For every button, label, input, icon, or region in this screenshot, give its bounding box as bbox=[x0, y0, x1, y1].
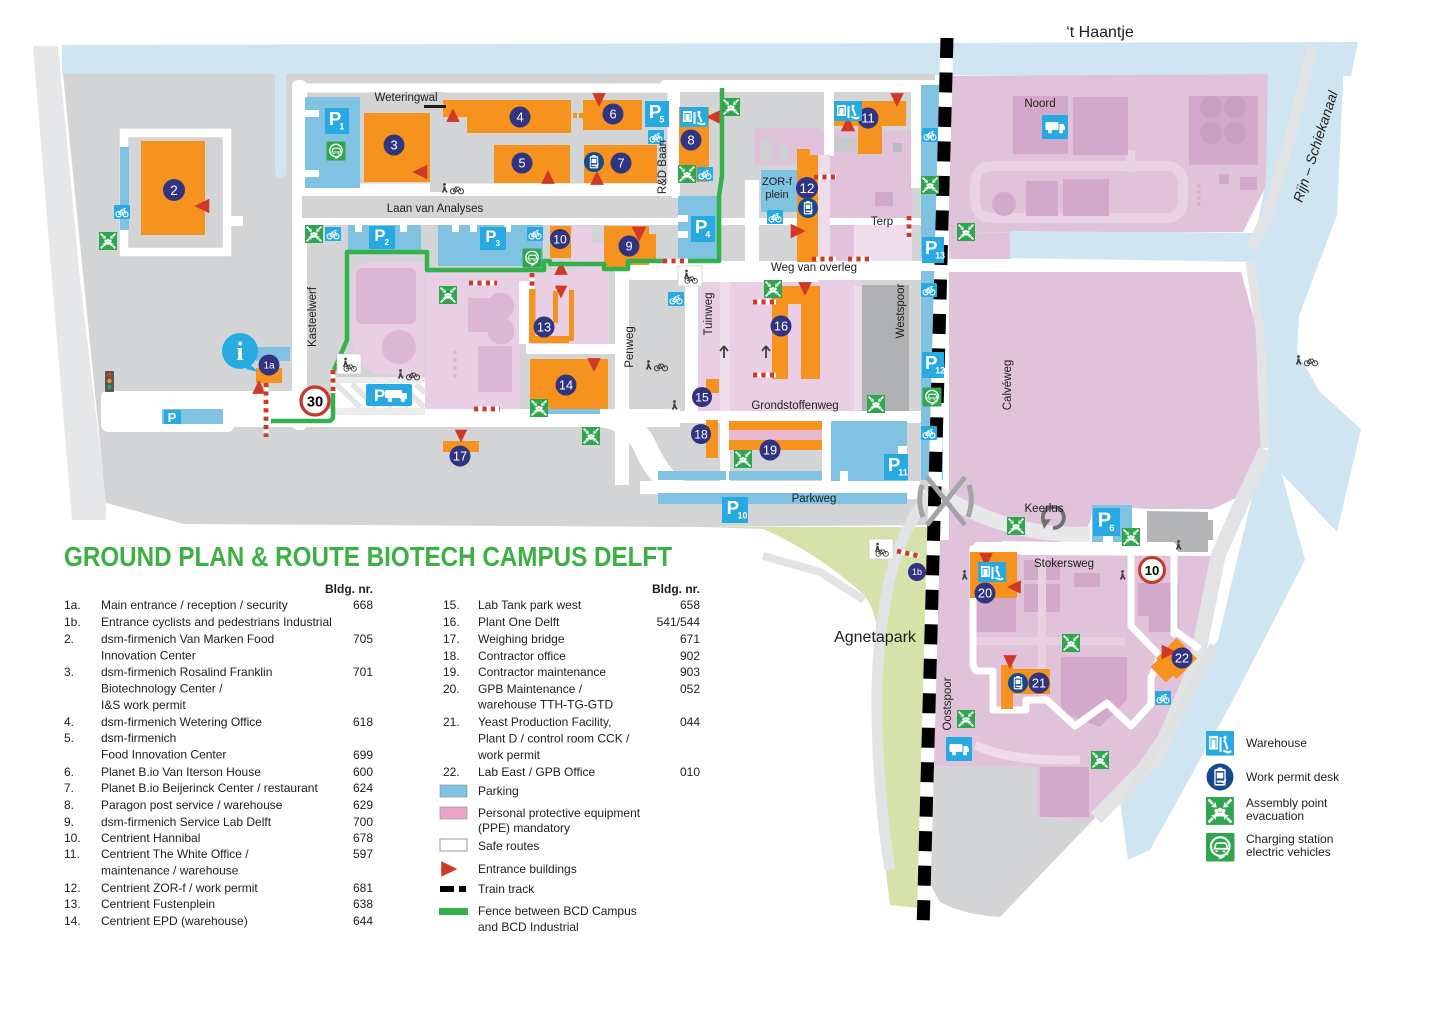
svg-text:‘t Haantje: ‘t Haantje bbox=[1066, 24, 1134, 41]
svg-text:7: 7 bbox=[617, 156, 624, 171]
svg-text:dsm-firmenich Van Marken Food: dsm-firmenich Van Marken Food bbox=[101, 632, 274, 646]
svg-text:8.: 8. bbox=[64, 798, 74, 812]
svg-text:Weighing bridge: Weighing bridge bbox=[478, 632, 565, 646]
svg-text:Centrient The White Office /: Centrient The White Office / bbox=[101, 847, 249, 861]
svg-text:GROUND PLAN & ROUTE BIOTECH CA: GROUND PLAN & ROUTE BIOTECH CAMPUS DELFT bbox=[64, 541, 672, 572]
svg-text:1b.: 1b. bbox=[64, 615, 81, 629]
svg-text:671: 671 bbox=[680, 632, 700, 646]
svg-text:Plant D / control room CCK /: Plant D / control room CCK / bbox=[478, 732, 630, 746]
svg-text:15.: 15. bbox=[443, 598, 460, 612]
svg-text:681: 681 bbox=[353, 881, 373, 895]
svg-text:Centrient EPD (warehouse): Centrient EPD (warehouse) bbox=[101, 914, 248, 928]
svg-text:1a: 1a bbox=[263, 361, 275, 372]
svg-text:600: 600 bbox=[353, 765, 373, 779]
svg-text:Planet B.io Beijerinck Center: Planet B.io Beijerinck Center / restaura… bbox=[101, 781, 318, 795]
svg-text:644: 644 bbox=[353, 914, 373, 928]
svg-text:4.: 4. bbox=[64, 715, 74, 729]
svg-text:5: 5 bbox=[659, 114, 664, 124]
svg-text:3.: 3. bbox=[64, 665, 74, 679]
svg-text:Centrient Hannibal: Centrient Hannibal bbox=[101, 831, 200, 845]
svg-text:4: 4 bbox=[705, 229, 710, 239]
svg-text:P: P bbox=[374, 386, 385, 405]
svg-text:Noord: Noord bbox=[1024, 98, 1055, 110]
svg-text:Personal protective equipment: Personal protective equipment bbox=[478, 806, 641, 820]
svg-text:Agnetapark: Agnetapark bbox=[834, 629, 917, 646]
svg-text:Entrance cyclists and pedestri: Entrance cyclists and pedestrians Indust… bbox=[101, 615, 332, 629]
svg-text:dsm-firmenich Wetering Office: dsm-firmenich Wetering Office bbox=[101, 715, 262, 729]
svg-text:Contractor office: Contractor office bbox=[478, 649, 566, 663]
svg-text:618: 618 bbox=[353, 715, 373, 729]
svg-text:13: 13 bbox=[537, 320, 551, 335]
svg-text:11: 11 bbox=[898, 467, 907, 477]
svg-text:19: 19 bbox=[763, 443, 777, 458]
svg-text:Kasteelwerf: Kasteelwerf bbox=[307, 286, 319, 347]
svg-text:2: 2 bbox=[170, 183, 177, 198]
svg-text:Biotechnology Center /: Biotechnology Center / bbox=[101, 682, 223, 696]
svg-text:3: 3 bbox=[496, 239, 501, 248]
svg-text:18.: 18. bbox=[443, 649, 460, 663]
svg-text:10.: 10. bbox=[64, 831, 81, 845]
svg-text:2: 2 bbox=[385, 238, 390, 247]
svg-text:and BCD Industrial: and BCD Industrial bbox=[478, 920, 579, 934]
svg-text:Warehouse: Warehouse bbox=[1246, 736, 1307, 750]
svg-text:668: 668 bbox=[353, 598, 373, 612]
svg-text:Plant One Delft: Plant One Delft bbox=[478, 615, 560, 629]
svg-text:11: 11 bbox=[861, 111, 874, 126]
svg-text:Westspoor: Westspoor bbox=[895, 283, 907, 338]
svg-text:Train track: Train track bbox=[478, 882, 535, 896]
svg-text:638: 638 bbox=[353, 897, 373, 911]
svg-text:Calvéweg: Calvéweg bbox=[1002, 360, 1014, 411]
svg-text:044: 044 bbox=[680, 715, 700, 729]
svg-text:6: 6 bbox=[609, 107, 616, 122]
svg-text:maintenance / warehouse: maintenance / warehouse bbox=[101, 864, 239, 878]
svg-text:15: 15 bbox=[695, 390, 709, 404]
svg-text:1a.: 1a. bbox=[64, 598, 81, 612]
svg-text:17: 17 bbox=[453, 449, 467, 464]
svg-text:R&D Baan: R&D Baan bbox=[657, 140, 669, 194]
svg-text:evacuation: evacuation bbox=[1246, 809, 1304, 823]
svg-text:Contractor maintenance: Contractor maintenance bbox=[478, 665, 606, 679]
svg-text:624: 624 bbox=[353, 781, 373, 795]
svg-text:12: 12 bbox=[800, 181, 815, 196]
svg-text:Yeast Production Facility,: Yeast Production Facility, bbox=[478, 715, 611, 729]
svg-text:P: P bbox=[168, 410, 177, 425]
svg-text:30: 30 bbox=[307, 394, 323, 410]
svg-text:work permit: work permit bbox=[477, 748, 541, 762]
svg-text:9.: 9. bbox=[64, 815, 74, 829]
svg-text:13: 13 bbox=[935, 250, 945, 260]
svg-text:629: 629 bbox=[353, 798, 373, 812]
svg-text:705: 705 bbox=[353, 632, 373, 646]
svg-text:Work permit desk: Work permit desk bbox=[1246, 770, 1340, 784]
svg-text:597: 597 bbox=[353, 847, 373, 861]
svg-text:20.: 20. bbox=[443, 682, 460, 696]
svg-text:Assembly point: Assembly point bbox=[1246, 796, 1328, 810]
svg-text:Stokersweg: Stokersweg bbox=[1034, 558, 1094, 570]
svg-text:700: 700 bbox=[353, 815, 373, 829]
svg-text:Entrance buildings: Entrance buildings bbox=[478, 862, 577, 876]
svg-text:2.: 2. bbox=[64, 632, 74, 646]
svg-text:electric vehicles: electric vehicles bbox=[1246, 845, 1331, 859]
svg-text:Lab East / GPB Office: Lab East / GPB Office bbox=[478, 765, 595, 779]
svg-text:Food Innovation Center: Food Innovation Center bbox=[101, 748, 226, 762]
svg-text:Oostspoor: Oostspoor bbox=[942, 677, 954, 730]
svg-text:10: 10 bbox=[1145, 563, 1160, 578]
svg-text:i: i bbox=[236, 337, 243, 366]
svg-text:7.: 7. bbox=[64, 781, 74, 795]
svg-text:Paragon post service / warehou: Paragon post service / warehouse bbox=[101, 798, 283, 812]
svg-text:1: 1 bbox=[339, 121, 344, 131]
svg-text:5.: 5. bbox=[64, 731, 74, 745]
svg-text:052: 052 bbox=[680, 682, 700, 696]
svg-text:Parkweg: Parkweg bbox=[792, 493, 837, 505]
svg-text:11.: 11. bbox=[64, 847, 80, 861]
svg-text:16: 16 bbox=[774, 319, 788, 334]
svg-text:13.: 13. bbox=[64, 897, 81, 911]
svg-text:21: 21 bbox=[1032, 676, 1046, 691]
svg-text:678: 678 bbox=[353, 831, 373, 845]
svg-text:Laan van Analyses: Laan van Analyses bbox=[387, 203, 484, 215]
svg-text:6.: 6. bbox=[64, 765, 74, 779]
svg-text:Weteringwal: Weteringwal bbox=[374, 92, 437, 104]
svg-text:ZOR-fplein: ZOR-fplein bbox=[762, 176, 793, 201]
svg-text:Bldg. nr.: Bldg. nr. bbox=[652, 582, 700, 596]
svg-text:14: 14 bbox=[559, 378, 573, 393]
svg-text:10: 10 bbox=[738, 510, 748, 520]
svg-text:Keerlus: Keerlus bbox=[1025, 503, 1064, 515]
svg-text:9: 9 bbox=[625, 239, 632, 254]
svg-text:(PPE) mandatory: (PPE) mandatory bbox=[478, 821, 570, 835]
svg-text:Terp: Terp bbox=[871, 216, 893, 228]
svg-text:699: 699 bbox=[353, 748, 373, 762]
svg-text:Safe routes: Safe routes bbox=[478, 839, 539, 853]
svg-text:20: 20 bbox=[978, 586, 992, 601]
svg-text:14.: 14. bbox=[64, 914, 81, 928]
svg-text:Penweg: Penweg bbox=[624, 326, 636, 368]
svg-text:Planet B.io Van Iterson House: Planet B.io Van Iterson House bbox=[101, 765, 261, 779]
svg-text:8: 8 bbox=[687, 133, 694, 148]
svg-text:16.: 16. bbox=[443, 615, 460, 629]
svg-text:6: 6 bbox=[1109, 523, 1114, 534]
svg-text:Parking: Parking bbox=[478, 784, 519, 798]
svg-text:Charging station: Charging station bbox=[1246, 832, 1333, 846]
svg-text:Lab Tank park west: Lab Tank park west bbox=[478, 598, 582, 612]
svg-text:dsm-firmenich Rosalind Frankli: dsm-firmenich Rosalind Franklin bbox=[101, 665, 272, 679]
svg-text:22: 22 bbox=[1175, 651, 1189, 666]
svg-text:Main entrance / reception / se: Main entrance / reception / security bbox=[101, 598, 288, 612]
svg-text:warehouse TTH-TG-GTD: warehouse TTH-TG-GTD bbox=[477, 698, 613, 712]
svg-text:Grondstoffenweg: Grondstoffenweg bbox=[751, 400, 838, 412]
svg-text:dsm-firmenich: dsm-firmenich bbox=[101, 731, 176, 745]
svg-text:010: 010 bbox=[680, 765, 700, 779]
svg-text:GPB Maintenance /: GPB Maintenance / bbox=[478, 682, 583, 696]
svg-text:902: 902 bbox=[680, 649, 700, 663]
svg-text:5: 5 bbox=[518, 156, 525, 171]
svg-text:dsm-firmenich Service Lab Delf: dsm-firmenich Service Lab Delft bbox=[101, 815, 272, 829]
svg-text:Fence between BCD Campus: Fence between BCD Campus bbox=[478, 904, 637, 918]
svg-text:Centrient ZOR-f / work permit: Centrient ZOR-f / work permit bbox=[101, 881, 258, 895]
svg-text:I&S work permit: I&S work permit bbox=[101, 698, 186, 712]
svg-text:18: 18 bbox=[694, 427, 708, 441]
svg-text:4: 4 bbox=[516, 110, 523, 125]
svg-text:21.: 21. bbox=[443, 715, 460, 729]
svg-text:541/544: 541/544 bbox=[657, 615, 701, 629]
svg-text:10: 10 bbox=[553, 232, 567, 246]
svg-text:701: 701 bbox=[353, 665, 373, 679]
svg-text:658: 658 bbox=[680, 598, 700, 612]
svg-text:Tuinweg: Tuinweg bbox=[703, 292, 715, 335]
svg-text:Weg van overleg: Weg van overleg bbox=[771, 262, 857, 274]
svg-text:22.: 22. bbox=[443, 765, 460, 779]
svg-text:12.: 12. bbox=[64, 881, 81, 895]
svg-text:3: 3 bbox=[390, 138, 397, 153]
svg-text:Centrient Fustenplein: Centrient Fustenplein bbox=[101, 897, 215, 911]
svg-text:Innovation Center: Innovation Center bbox=[101, 649, 196, 663]
svg-text:903: 903 bbox=[680, 665, 700, 679]
svg-text:1b: 1b bbox=[912, 567, 922, 577]
svg-text:12: 12 bbox=[935, 365, 945, 375]
svg-text:19.: 19. bbox=[443, 665, 460, 679]
svg-text:Bldg. nr.: Bldg. nr. bbox=[325, 582, 373, 596]
svg-text:17.: 17. bbox=[443, 632, 460, 646]
